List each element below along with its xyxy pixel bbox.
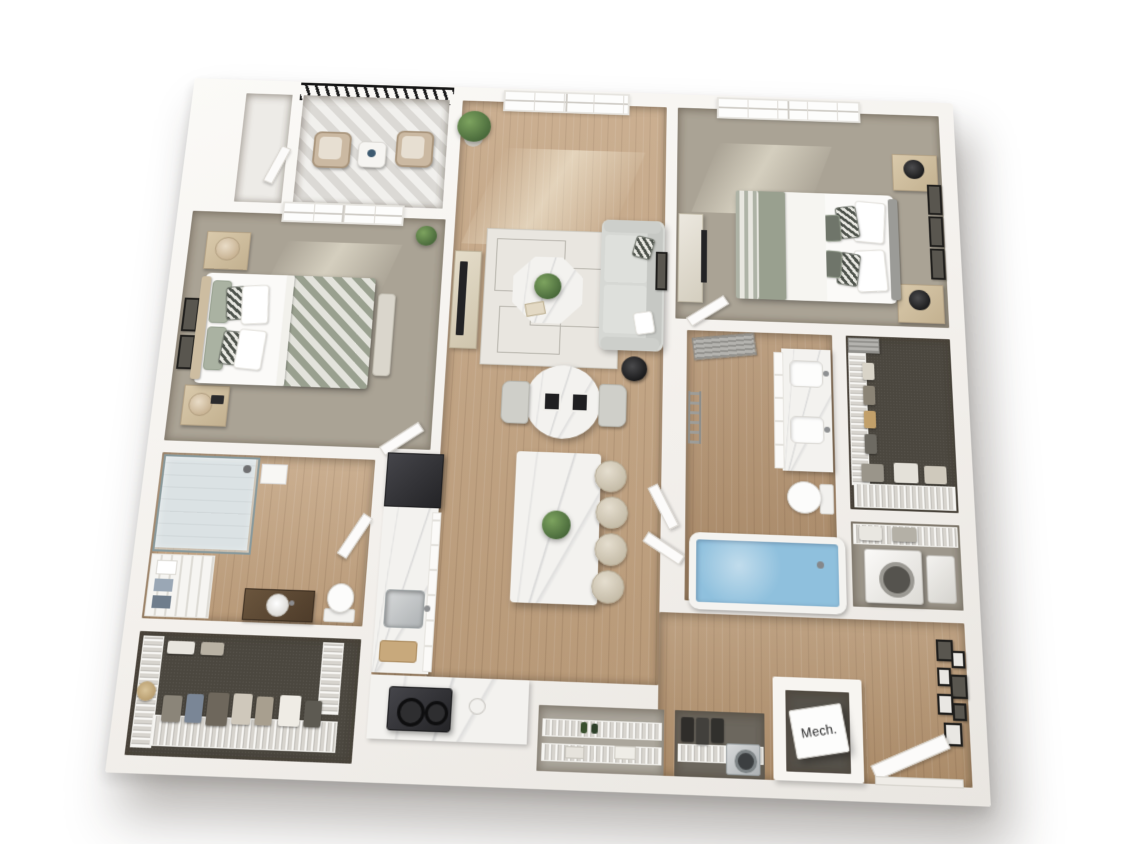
striped-blanket	[736, 190, 760, 299]
hanging-clothes	[864, 434, 877, 454]
folded-clothes	[167, 641, 196, 655]
bed-bench	[372, 293, 396, 376]
hanging-clothes	[254, 696, 274, 725]
room-coat-closet	[674, 710, 765, 780]
wire-shelf	[854, 483, 957, 511]
sofa-pillow	[633, 311, 656, 336]
basket	[861, 463, 884, 482]
room-balcony	[293, 95, 450, 208]
louvered-door	[848, 338, 880, 354]
balcony-chair-cushion	[401, 136, 425, 159]
gallery-frame	[952, 703, 967, 721]
chevron-blanket	[282, 276, 376, 389]
bottles-icon	[591, 724, 598, 734]
bath-shelf-box	[260, 464, 288, 485]
towel	[151, 595, 171, 608]
kitchen-sink	[383, 589, 425, 629]
mech-unit-cube: Mech.	[788, 703, 850, 759]
dining-chair	[500, 380, 530, 424]
bedroom-1-window	[281, 201, 404, 226]
door-threshold	[875, 776, 964, 789]
wall-art-frame	[930, 249, 946, 280]
table-lamp-icon	[903, 160, 925, 180]
place-setting	[543, 391, 562, 411]
towel	[153, 578, 173, 591]
bottles-icon	[581, 722, 588, 733]
box-icon	[614, 746, 636, 760]
burner-icon	[396, 697, 426, 727]
laundry-bin	[892, 527, 917, 542]
room-walk-in-closet-2	[846, 336, 959, 514]
tv-icon	[701, 230, 707, 283]
hanging-clothes	[184, 694, 204, 723]
bathtub	[689, 532, 847, 615]
folded-clothes	[200, 642, 224, 656]
hanging-clothes	[864, 411, 877, 429]
hanging-clothes	[863, 385, 876, 405]
hanging-clothes	[205, 692, 230, 726]
sofa-arm	[600, 336, 659, 351]
hanging-clothes	[303, 700, 322, 727]
phone-on-nightstand	[210, 395, 224, 404]
room-walk-in-closet-1	[124, 631, 361, 764]
cooktop	[386, 686, 453, 733]
room-bathroom-1	[142, 452, 376, 626]
dining-chair	[598, 384, 627, 428]
floor-plan-canvas: Mech.	[0, 0, 1125, 844]
living-room-window	[503, 90, 630, 115]
room-bedroom-1	[164, 211, 446, 450]
box-icon	[565, 746, 585, 759]
room-bathroom-2	[684, 330, 838, 606]
wire-shelf	[541, 743, 662, 766]
living-wall-art-frame	[655, 252, 667, 291]
refrigerator	[384, 452, 444, 508]
hanging-clothes	[231, 693, 253, 725]
wire-shelf	[542, 718, 662, 740]
hanging-clothes	[862, 363, 874, 381]
hanging-clothes	[161, 695, 183, 722]
hanging-clothes	[278, 695, 302, 727]
faucet-icon	[824, 427, 830, 433]
wall-art-frame	[928, 216, 944, 247]
faucet-icon	[823, 371, 829, 377]
burner-icon	[424, 701, 449, 726]
room-bedroom-2	[675, 108, 949, 328]
vanity-drawers	[773, 352, 784, 469]
place-setting	[571, 392, 590, 412]
bed-sheet	[783, 192, 827, 301]
balcony-chair-cushion	[318, 136, 343, 159]
hanging-coats	[681, 717, 694, 742]
gallery-frame	[951, 651, 966, 669]
plant-icon	[415, 226, 437, 246]
dryer	[926, 555, 957, 604]
vanity-sink	[789, 360, 823, 388]
towel-ladder-icon	[688, 391, 701, 444]
sofa-arm	[604, 219, 662, 233]
appliance-door-icon	[735, 749, 758, 774]
room-pantry-closet	[536, 705, 664, 776]
floor-plan: Mech.	[105, 78, 991, 807]
wall-art-frame	[927, 185, 943, 215]
basket	[924, 466, 947, 485]
dresser	[678, 213, 704, 303]
towel	[155, 560, 177, 575]
mech-room-label: Mech.	[800, 721, 838, 742]
laundry-bin	[859, 526, 882, 541]
cutting-board	[378, 640, 417, 663]
sage-band-blanket	[757, 191, 787, 300]
bed-pillow	[241, 285, 270, 325]
tub-faucet-icon	[817, 561, 824, 569]
hanging-coats	[711, 718, 724, 743]
room-laundry-closet	[851, 521, 964, 610]
front-door	[871, 734, 951, 781]
toilet	[787, 481, 822, 515]
louvered-barn-door	[692, 333, 757, 361]
vanity-sink	[790, 416, 825, 445]
basket	[894, 463, 919, 484]
hanging-coats	[696, 718, 709, 745]
